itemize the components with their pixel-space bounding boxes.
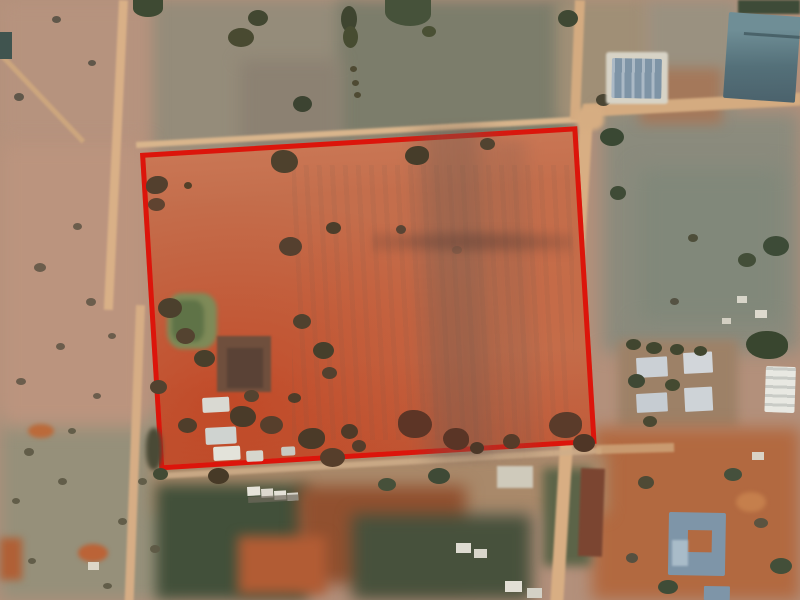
blue-roof-small bbox=[704, 586, 730, 600]
tree bbox=[148, 198, 165, 211]
tree bbox=[422, 26, 436, 37]
dirt-mound bbox=[736, 492, 766, 512]
bush bbox=[670, 298, 679, 305]
tree bbox=[248, 10, 268, 26]
tree bbox=[288, 393, 301, 403]
tree bbox=[428, 468, 450, 484]
bush bbox=[58, 478, 67, 485]
tree bbox=[378, 478, 396, 491]
bush bbox=[88, 60, 96, 66]
u-building-highlight bbox=[672, 540, 688, 566]
tree bbox=[626, 339, 641, 350]
tree bbox=[244, 390, 259, 402]
tree bbox=[133, 0, 163, 17]
bush bbox=[103, 583, 112, 589]
bush bbox=[138, 478, 147, 485]
tree bbox=[558, 10, 578, 27]
orange-mound bbox=[78, 544, 108, 562]
shack bbox=[247, 486, 260, 496]
trees-strip-above-court bbox=[738, 0, 800, 14]
bush bbox=[16, 378, 26, 385]
tree bbox=[628, 374, 645, 388]
plough-striations bbox=[292, 165, 574, 440]
tree bbox=[178, 418, 197, 433]
tree bbox=[228, 28, 254, 47]
bush bbox=[350, 66, 357, 72]
tree bbox=[770, 558, 792, 574]
tree bbox=[326, 222, 341, 234]
tree bbox=[352, 440, 366, 452]
tree bbox=[313, 342, 334, 359]
farm-building bbox=[205, 426, 237, 445]
tree bbox=[670, 344, 684, 355]
tree bbox=[150, 380, 167, 394]
bush bbox=[688, 234, 698, 242]
bush bbox=[73, 223, 82, 230]
farm-building bbox=[281, 446, 295, 456]
bush bbox=[352, 80, 359, 86]
tree bbox=[158, 298, 182, 318]
farm-building bbox=[246, 450, 264, 462]
tree bbox=[480, 138, 495, 150]
tree bbox=[746, 331, 788, 359]
bush bbox=[34, 263, 46, 272]
tree bbox=[398, 410, 432, 438]
tree bbox=[763, 236, 789, 256]
long-white-building bbox=[764, 366, 796, 413]
tree bbox=[724, 468, 742, 481]
tree bbox=[638, 476, 654, 489]
tree bbox=[298, 428, 325, 449]
tree bbox=[443, 428, 469, 450]
tree bbox=[176, 328, 195, 344]
tree bbox=[643, 416, 657, 427]
tree bbox=[320, 448, 345, 467]
tree bbox=[405, 146, 429, 165]
bush bbox=[56, 343, 65, 350]
tree bbox=[293, 314, 311, 329]
small-structure bbox=[88, 562, 99, 570]
blue-roof-building bbox=[611, 58, 662, 99]
bush bbox=[150, 545, 160, 553]
white-building bbox=[527, 588, 542, 598]
bush bbox=[93, 393, 101, 399]
small-structure bbox=[737, 296, 747, 303]
tree bbox=[146, 428, 162, 470]
small-structure bbox=[755, 310, 767, 318]
tree bbox=[665, 379, 680, 391]
house bbox=[636, 392, 668, 413]
tree bbox=[646, 342, 662, 354]
tree bbox=[503, 434, 520, 449]
farm-brown-inner bbox=[227, 348, 263, 388]
house bbox=[684, 387, 713, 412]
bush bbox=[28, 558, 36, 564]
watermark-text-faint bbox=[372, 226, 572, 258]
ploughed-strip bbox=[578, 468, 605, 557]
bush bbox=[108, 333, 116, 339]
bush bbox=[184, 182, 192, 189]
tree bbox=[293, 96, 312, 112]
bush bbox=[52, 16, 61, 23]
road-junction-pad bbox=[576, 106, 604, 130]
tree bbox=[279, 237, 302, 256]
small-structure bbox=[752, 452, 764, 460]
white-building bbox=[456, 543, 471, 553]
tree bbox=[153, 468, 168, 480]
tree bbox=[738, 253, 756, 267]
u-building-notch bbox=[688, 530, 712, 552]
tree bbox=[230, 406, 256, 427]
tree bbox=[658, 580, 678, 594]
tree bbox=[208, 468, 229, 484]
tree bbox=[549, 412, 582, 438]
bush bbox=[754, 518, 768, 528]
white-building bbox=[505, 581, 522, 592]
tree bbox=[260, 416, 283, 434]
bush bbox=[14, 93, 24, 101]
tree bbox=[322, 367, 337, 379]
scrub-bottom-left bbox=[0, 412, 168, 600]
orange-patch-bottom bbox=[238, 536, 326, 594]
tree bbox=[194, 350, 215, 367]
bush bbox=[354, 92, 361, 98]
tree bbox=[600, 128, 624, 146]
bush bbox=[68, 428, 76, 434]
tree bbox=[610, 186, 626, 200]
bush bbox=[626, 553, 638, 563]
scrub-right-green bbox=[638, 168, 783, 323]
white-building bbox=[474, 549, 487, 558]
dark-structure-top-left bbox=[0, 32, 12, 59]
tree bbox=[470, 442, 484, 454]
orange-mound bbox=[0, 538, 22, 580]
tree bbox=[343, 26, 358, 48]
pink-patch-top-left bbox=[0, 0, 150, 145]
farm-building bbox=[213, 446, 241, 461]
small-structure bbox=[722, 318, 731, 324]
satellite-map[interactable] bbox=[0, 0, 800, 600]
tree bbox=[271, 150, 298, 173]
tree bbox=[694, 346, 707, 356]
orange-mound bbox=[28, 424, 54, 438]
sport-court bbox=[723, 12, 800, 103]
bush bbox=[24, 448, 34, 456]
tree bbox=[341, 424, 358, 439]
bush bbox=[86, 298, 96, 306]
tree bbox=[573, 434, 595, 452]
white-building bbox=[497, 466, 533, 488]
bush bbox=[12, 498, 20, 504]
farm-building bbox=[202, 397, 230, 413]
bush bbox=[118, 518, 127, 525]
